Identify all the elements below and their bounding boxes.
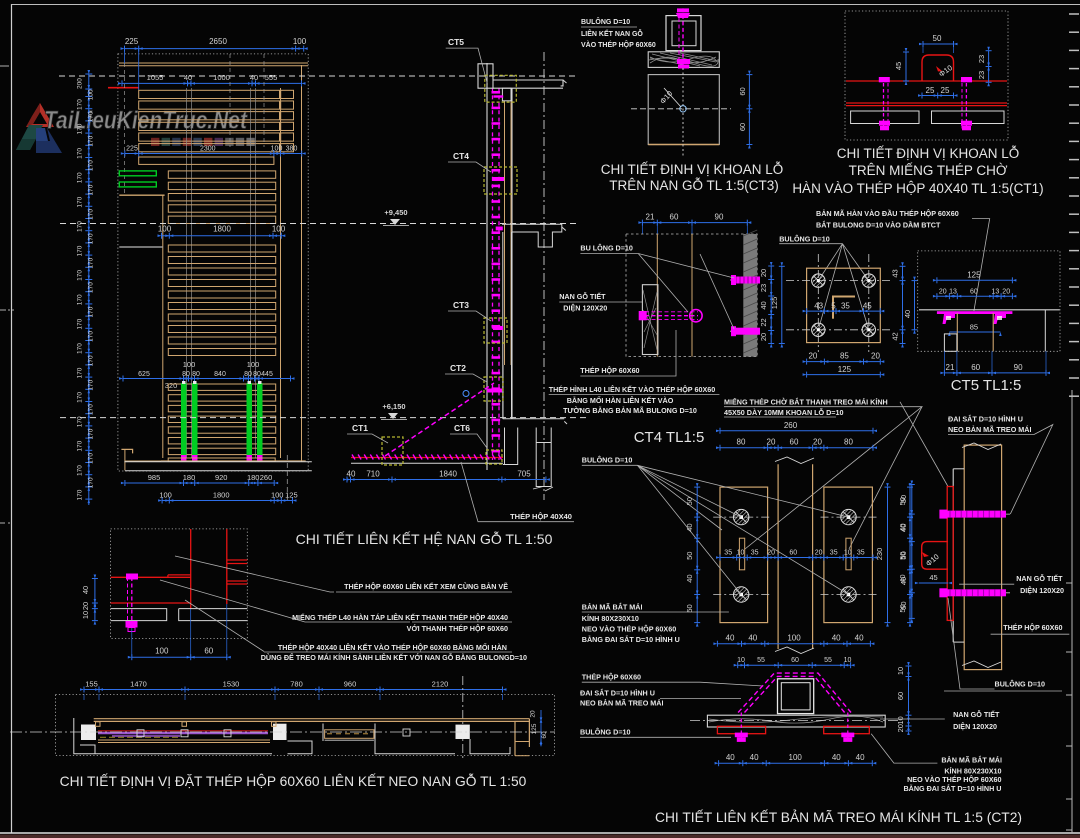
svg-text:1530: 1530 [223, 680, 240, 689]
svg-text:43: 43 [814, 302, 823, 311]
svg-text:DIỆN 120X20: DIỆN 120X20 [563, 304, 607, 313]
svg-text:10: 10 [737, 550, 745, 557]
svg-text:50: 50 [933, 34, 942, 43]
svg-text:ĐAI SẮT D=10 HÌNH U: ĐAI SẮT D=10 HÌNH U [580, 689, 655, 698]
svg-text:100: 100 [158, 225, 172, 234]
svg-text:125: 125 [531, 723, 538, 734]
svg-text:20: 20 [939, 289, 947, 296]
svg-text:BULÔNG D=10: BULÔNG D=10 [581, 17, 630, 26]
svg-text:50: 50 [685, 552, 694, 560]
svg-text:625: 625 [138, 371, 150, 378]
svg-text:TRÊN NAN GỖ TL 1:5(CT3): TRÊN NAN GỖ TL 1:5(CT3) [609, 178, 779, 193]
svg-text:40: 40 [726, 634, 735, 643]
svg-text:170: 170 [77, 465, 84, 476]
svg-text:20: 20 [896, 724, 905, 732]
svg-text:BẰNG ĐAI SẮT D=10 HÌNH U: BẰNG ĐAI SẮT D=10 HÌNH U [582, 635, 680, 644]
svg-text:1000: 1000 [213, 73, 230, 82]
svg-text:60: 60 [670, 213, 679, 222]
svg-text:TƯỜNG BẰNG BẢN MÃ BULONG D=10: TƯỜNG BẰNG BẢN MÃ BULONG D=10 [563, 406, 697, 415]
svg-text:NAN GỖ TIẾT: NAN GỖ TIẾT [953, 709, 1000, 719]
svg-text:MIẾNG THÉP CHỜ BẮT THANH TREO: MIẾNG THÉP CHỜ BẮT THANH TREO MÁI KÍNH [724, 397, 888, 407]
svg-text:5: 5 [831, 302, 836, 311]
svg-text:555: 555 [265, 73, 278, 82]
svg-text:2120: 2120 [432, 680, 449, 689]
svg-text:710: 710 [366, 470, 380, 479]
svg-text:THÉP HỘP 60X60: THÉP HỘP 60X60 [1003, 623, 1062, 632]
svg-text:43: 43 [891, 269, 900, 277]
svg-text:1055: 1055 [147, 73, 164, 82]
svg-text:20: 20 [530, 710, 537, 718]
svg-text:90: 90 [715, 213, 724, 222]
svg-text:CT4 TL1:5: CT4 TL1:5 [634, 429, 705, 446]
svg-text:35: 35 [841, 302, 850, 311]
svg-text:170: 170 [77, 416, 84, 427]
svg-text:55: 55 [824, 657, 832, 664]
svg-text:320: 320 [165, 381, 178, 390]
svg-text:20: 20 [767, 438, 776, 447]
svg-text:CHI TIẾT ĐỊNH VỊ KHOAN LỖ: CHI TIẾT ĐỊNH VỊ KHOAN LỖ [601, 162, 784, 177]
svg-text:60: 60 [541, 731, 548, 739]
svg-text:50: 50 [898, 552, 907, 560]
svg-text:40: 40 [685, 574, 694, 582]
svg-text:DIỆN 120X20: DIỆN 120X20 [953, 722, 997, 731]
svg-text:125: 125 [285, 491, 298, 500]
svg-text:KÍNH 80X230X10: KÍNH 80X230X10 [582, 614, 639, 623]
svg-text:170: 170 [87, 428, 94, 439]
svg-text:THÉP HỘP 60X60: THÉP HỘP 60X60 [582, 673, 641, 682]
svg-text:CHI TIẾT LIÊN KẾT BẢN MÃ TREO: CHI TIẾT LIÊN KẾT BẢN MÃ TREO MÁI KÍNH T… [655, 809, 1022, 825]
svg-text:35: 35 [751, 550, 759, 557]
svg-text:TRÊN MIẾNG THÉP CHỜ: TRÊN MIẾNG THÉP CHỜ [849, 163, 1008, 178]
svg-text:40: 40 [898, 523, 907, 531]
svg-text:40: 40 [855, 634, 864, 643]
svg-text:VÀO THÉP HỘP 60X60: VÀO THÉP HỘP 60X60 [581, 40, 656, 49]
svg-text:170: 170 [77, 196, 84, 207]
svg-text:2300: 2300 [200, 146, 216, 153]
svg-text:+6,150: +6,150 [382, 402, 405, 411]
svg-text:40: 40 [903, 310, 912, 318]
svg-text:170: 170 [87, 404, 94, 415]
svg-text:80: 80 [244, 371, 252, 378]
svg-text:50: 50 [898, 497, 907, 505]
svg-text:260: 260 [260, 473, 273, 482]
svg-text:170: 170 [87, 111, 94, 122]
svg-text:170: 170 [87, 257, 94, 268]
svg-text:BULÔNG D=10: BULÔNG D=10 [582, 455, 633, 464]
svg-text:170: 170 [77, 172, 84, 183]
svg-text:225: 225 [126, 146, 138, 153]
svg-text:1840: 1840 [439, 470, 457, 479]
svg-text:BU LÔNG D=10: BU LÔNG D=10 [580, 243, 633, 252]
svg-text:50: 50 [898, 604, 907, 612]
svg-text:50: 50 [685, 604, 694, 612]
svg-text:60: 60 [896, 692, 905, 700]
svg-text:10: 10 [896, 667, 905, 675]
svg-text:40: 40 [832, 753, 841, 762]
svg-text:80: 80 [253, 371, 261, 378]
svg-text:100: 100 [789, 753, 803, 762]
svg-text:DÙNG ĐỂ TREO MÁI KÍNH SẢNH LIÊ: DÙNG ĐỂ TREO MÁI KÍNH SẢNH LIÊN KẾT VỚI … [261, 652, 527, 662]
svg-text:170: 170 [77, 99, 84, 110]
svg-text:20: 20 [759, 333, 768, 341]
svg-text:40: 40 [898, 574, 907, 582]
svg-text:40: 40 [750, 753, 759, 762]
svg-text:40: 40 [759, 301, 768, 309]
svg-text:60: 60 [738, 123, 747, 131]
svg-text:THÉP HỘP 40X40 LIÊN KẾT VÀO TH: THÉP HỘP 40X40 LIÊN KẾT VÀO THÉP HỘP 60X… [278, 642, 507, 652]
svg-text:VỚI THANH THÉP HỘP 60X60: VỚI THANH THÉP HỘP 60X60 [407, 624, 508, 633]
svg-text:21: 21 [946, 363, 955, 372]
svg-text:170: 170 [77, 148, 84, 159]
svg-text:40: 40 [856, 753, 865, 762]
svg-text:40: 40 [685, 523, 694, 531]
svg-text:NEO BẢN MÃ TREO MÁI: NEO BẢN MÃ TREO MÁI [948, 425, 1031, 434]
svg-text:THÉP HỘP 60X60: THÉP HỘP 60X60 [580, 366, 639, 375]
svg-text:13: 13 [992, 289, 1000, 296]
svg-text:10: 10 [896, 716, 905, 724]
svg-text:20: 20 [767, 550, 775, 557]
svg-text:40: 40 [832, 634, 841, 643]
svg-text:CT1: CT1 [352, 423, 368, 433]
svg-text:170: 170 [87, 379, 94, 390]
svg-text:60: 60 [204, 647, 213, 656]
svg-text:230: 230 [875, 548, 884, 561]
svg-text:60: 60 [970, 289, 978, 296]
svg-text:80: 80 [844, 438, 853, 447]
svg-text:BẮT BULONG D=10 VÀO DẦM BTCT: BẮT BULONG D=10 VÀO DẦM BTCT [816, 220, 941, 230]
svg-text:100: 100 [787, 634, 801, 643]
svg-text:170: 170 [77, 489, 84, 500]
svg-text:CT3: CT3 [453, 300, 469, 310]
svg-text:+9,450: +9,450 [384, 208, 407, 217]
svg-text:21: 21 [646, 213, 655, 222]
svg-text:45: 45 [929, 573, 937, 582]
svg-text:THÉP HÌNH L40 LIÊN KẾT VÀO THÉ: THÉP HÌNH L40 LIÊN KẾT VÀO THÉP HỘP 60X6… [549, 384, 716, 394]
svg-text:BULÔNG D=10: BULÔNG D=10 [580, 727, 631, 736]
svg-text:125: 125 [967, 271, 981, 280]
svg-text:THÉP HỘP 40X40: THÉP HỘP 40X40 [510, 512, 572, 521]
svg-text:170: 170 [87, 160, 94, 171]
svg-text:35: 35 [830, 550, 838, 557]
svg-text:CT5: CT5 [448, 37, 464, 47]
svg-text:225: 225 [125, 37, 139, 46]
svg-text:40: 40 [250, 73, 258, 82]
svg-text:170: 170 [87, 453, 94, 464]
svg-text:35: 35 [857, 550, 865, 557]
svg-text:100: 100 [272, 225, 286, 234]
svg-text:20: 20 [1002, 289, 1010, 296]
svg-text:55: 55 [757, 657, 765, 664]
svg-text:13: 13 [949, 289, 957, 296]
svg-text:BẢN MÃ HÀN VÀO ĐẦU THÉP HỘP 60: BẢN MÃ HÀN VÀO ĐẦU THÉP HỘP 60X60 [816, 208, 959, 218]
svg-text:ĐAI SẮT D=10 HÌNH U: ĐAI SẮT D=10 HÌNH U [948, 415, 1023, 424]
svg-text:170: 170 [87, 282, 94, 293]
svg-text:20: 20 [813, 438, 822, 447]
svg-text:780: 780 [290, 680, 303, 689]
svg-text:BẢN MÃ BẮT MÁI: BẢN MÃ BẮT MÁI [582, 603, 643, 612]
svg-text:260: 260 [784, 421, 798, 430]
svg-text:40: 40 [184, 73, 192, 82]
svg-text:45: 45 [894, 62, 903, 70]
svg-text:170: 170 [87, 233, 94, 244]
svg-text:10: 10 [844, 550, 852, 557]
svg-text:170: 170 [77, 245, 84, 256]
svg-text:60: 60 [789, 550, 797, 557]
svg-text:100: 100 [87, 89, 94, 100]
svg-text:HÀN VÀO THÉP HỘP 40X40 TL 1:5(: HÀN VÀO THÉP HỘP 40X40 TL 1:5(CT1) [792, 181, 1043, 196]
svg-text:125: 125 [770, 297, 779, 310]
svg-text:80: 80 [182, 371, 190, 378]
svg-text:45: 45 [863, 302, 872, 311]
svg-text:960: 960 [344, 680, 357, 689]
svg-text:100: 100 [155, 647, 169, 656]
svg-text:20: 20 [815, 550, 823, 557]
svg-text:170: 170 [77, 440, 84, 451]
svg-text:20: 20 [871, 352, 880, 361]
svg-text:170: 170 [77, 343, 84, 354]
svg-text:23: 23 [977, 55, 986, 63]
svg-text:42: 42 [891, 332, 900, 340]
svg-text:23: 23 [977, 71, 986, 79]
svg-text:170: 170 [77, 221, 84, 232]
svg-text:200: 200 [77, 78, 84, 89]
svg-text:2650: 2650 [209, 37, 227, 46]
svg-text:40: 40 [347, 470, 356, 479]
svg-text:170: 170 [87, 135, 94, 146]
svg-text:40: 40 [726, 753, 735, 762]
svg-text:40: 40 [81, 586, 90, 594]
svg-text:CHI TIẾT ĐỊNH VỊ KHOAN LỖ: CHI TIẾT ĐỊNH VỊ KHOAN LỖ [837, 146, 1020, 161]
svg-text:180: 180 [183, 473, 196, 482]
svg-text:80: 80 [737, 438, 746, 447]
svg-text:CT6: CT6 [454, 423, 470, 433]
svg-text:170: 170 [77, 367, 84, 378]
svg-text:NAN GỖ TIẾT: NAN GỖ TIẾT [1016, 573, 1063, 583]
svg-text:125: 125 [838, 365, 852, 374]
svg-text:100: 100 [183, 360, 196, 369]
svg-text:170: 170 [77, 123, 84, 134]
svg-text:BẢN MÃ BẮT MÁI: BẢN MÃ BẮT MÁI [941, 756, 1002, 765]
svg-text:170: 170 [77, 392, 84, 403]
svg-text:170: 170 [87, 209, 94, 220]
svg-text:100: 100 [293, 37, 307, 46]
svg-text:1800: 1800 [213, 491, 230, 500]
svg-text:BULÔNG D=10: BULÔNG D=10 [779, 234, 830, 243]
svg-text:CT5 TL1:5: CT5 TL1:5 [951, 377, 1022, 394]
svg-text:80: 80 [192, 371, 200, 378]
svg-text:170: 170 [87, 355, 94, 366]
svg-text:NAN GỖ TIẾT: NAN GỖ TIẾT [559, 291, 606, 301]
svg-text:20: 20 [81, 602, 90, 610]
svg-text:100: 100 [159, 491, 172, 500]
svg-text:60: 60 [971, 363, 980, 372]
svg-text:25: 25 [941, 86, 950, 95]
svg-text:45X50 DÀY 10MM KHOAN LỖ D=10: 45X50 DÀY 10MM KHOAN LỖ D=10 [724, 408, 844, 417]
svg-text:BẰNG ĐAI SẮT D=10 HÌNH U: BẰNG ĐAI SẮT D=10 HÌNH U [903, 784, 1001, 793]
svg-text:CHI TIẾT ĐỊNH VỊ ĐẶT THÉP HỘP: CHI TIẾT ĐỊNH VỊ ĐẶT THÉP HỘP 60X60 LIÊN… [60, 772, 527, 789]
svg-text:20: 20 [759, 269, 768, 277]
svg-text:23: 23 [759, 284, 768, 292]
svg-text:60: 60 [790, 438, 799, 447]
svg-text:155: 155 [85, 680, 98, 689]
svg-text:CHI TIẾT LIÊN KẾT HỆ NAN GỖ TL: CHI TIẾT LIÊN KẾT HỆ NAN GỖ TL 1:50 [296, 530, 553, 547]
svg-text:170: 170 [87, 477, 94, 488]
svg-text:920: 920 [215, 473, 228, 482]
svg-text:840: 840 [214, 371, 226, 378]
svg-text:985: 985 [148, 473, 161, 482]
svg-text:CT4: CT4 [453, 151, 469, 161]
svg-text:445: 445 [261, 371, 273, 378]
svg-text:25: 25 [926, 86, 935, 95]
svg-text:380: 380 [286, 146, 298, 153]
svg-text:40: 40 [748, 634, 757, 643]
svg-text:180: 180 [247, 473, 260, 482]
svg-text:100: 100 [247, 360, 260, 369]
svg-text:170: 170 [77, 318, 84, 329]
svg-text:1470: 1470 [130, 680, 147, 689]
svg-text:BULÔNG D=10: BULÔNG D=10 [995, 680, 1046, 689]
svg-text:THÉP HỘP 60X60 LIÊN KẾT XEM CÙ: THÉP HỘP 60X60 LIÊN KẾT XEM CÙNG BẢN VẼ [344, 581, 508, 591]
svg-text:CT2: CT2 [450, 363, 466, 373]
svg-text:705: 705 [517, 470, 531, 479]
svg-text:170: 170 [77, 270, 84, 281]
svg-text:35: 35 [724, 550, 732, 557]
svg-text:MIẾNG THÉP L40 HÀN TÁP LIÊN KẾ: MIẾNG THÉP L40 HÀN TÁP LIÊN KẾT THANH TH… [292, 612, 508, 622]
svg-text:85: 85 [970, 323, 978, 332]
svg-text:170: 170 [77, 294, 84, 305]
svg-text:DIỆN 120X20: DIỆN 120X20 [1020, 586, 1064, 595]
svg-text:170: 170 [87, 306, 94, 317]
svg-text:10: 10 [81, 611, 90, 619]
svg-text:NEO VÀO THÉP HỘP 60X60: NEO VÀO THÉP HỘP 60X60 [907, 775, 1001, 784]
svg-text:20: 20 [808, 352, 817, 361]
svg-text:100: 100 [271, 146, 283, 153]
svg-text:NEO VÀO THÉP HỘP 60X60: NEO VÀO THÉP HỘP 60X60 [582, 625, 676, 634]
svg-text:10: 10 [844, 657, 852, 664]
svg-text:50: 50 [685, 497, 694, 505]
svg-text:100: 100 [271, 491, 284, 500]
svg-text:170: 170 [87, 331, 94, 342]
svg-text:85: 85 [840, 352, 849, 361]
svg-text:BẰNG MỐI HÀN LIÊN KẾT VÀO: BẰNG MỐI HÀN LIÊN KẾT VÀO [567, 395, 674, 405]
svg-text:60: 60 [738, 87, 747, 95]
svg-text:170: 170 [87, 184, 94, 195]
svg-text:1800: 1800 [213, 225, 231, 234]
svg-text:90: 90 [1014, 363, 1023, 372]
svg-text:NEO BẢN MÃ TREO MÁI: NEO BẢN MÃ TREO MÁI [580, 699, 663, 708]
svg-text:10: 10 [737, 657, 745, 664]
svg-text:22: 22 [759, 318, 768, 326]
svg-text:60: 60 [791, 657, 799, 664]
